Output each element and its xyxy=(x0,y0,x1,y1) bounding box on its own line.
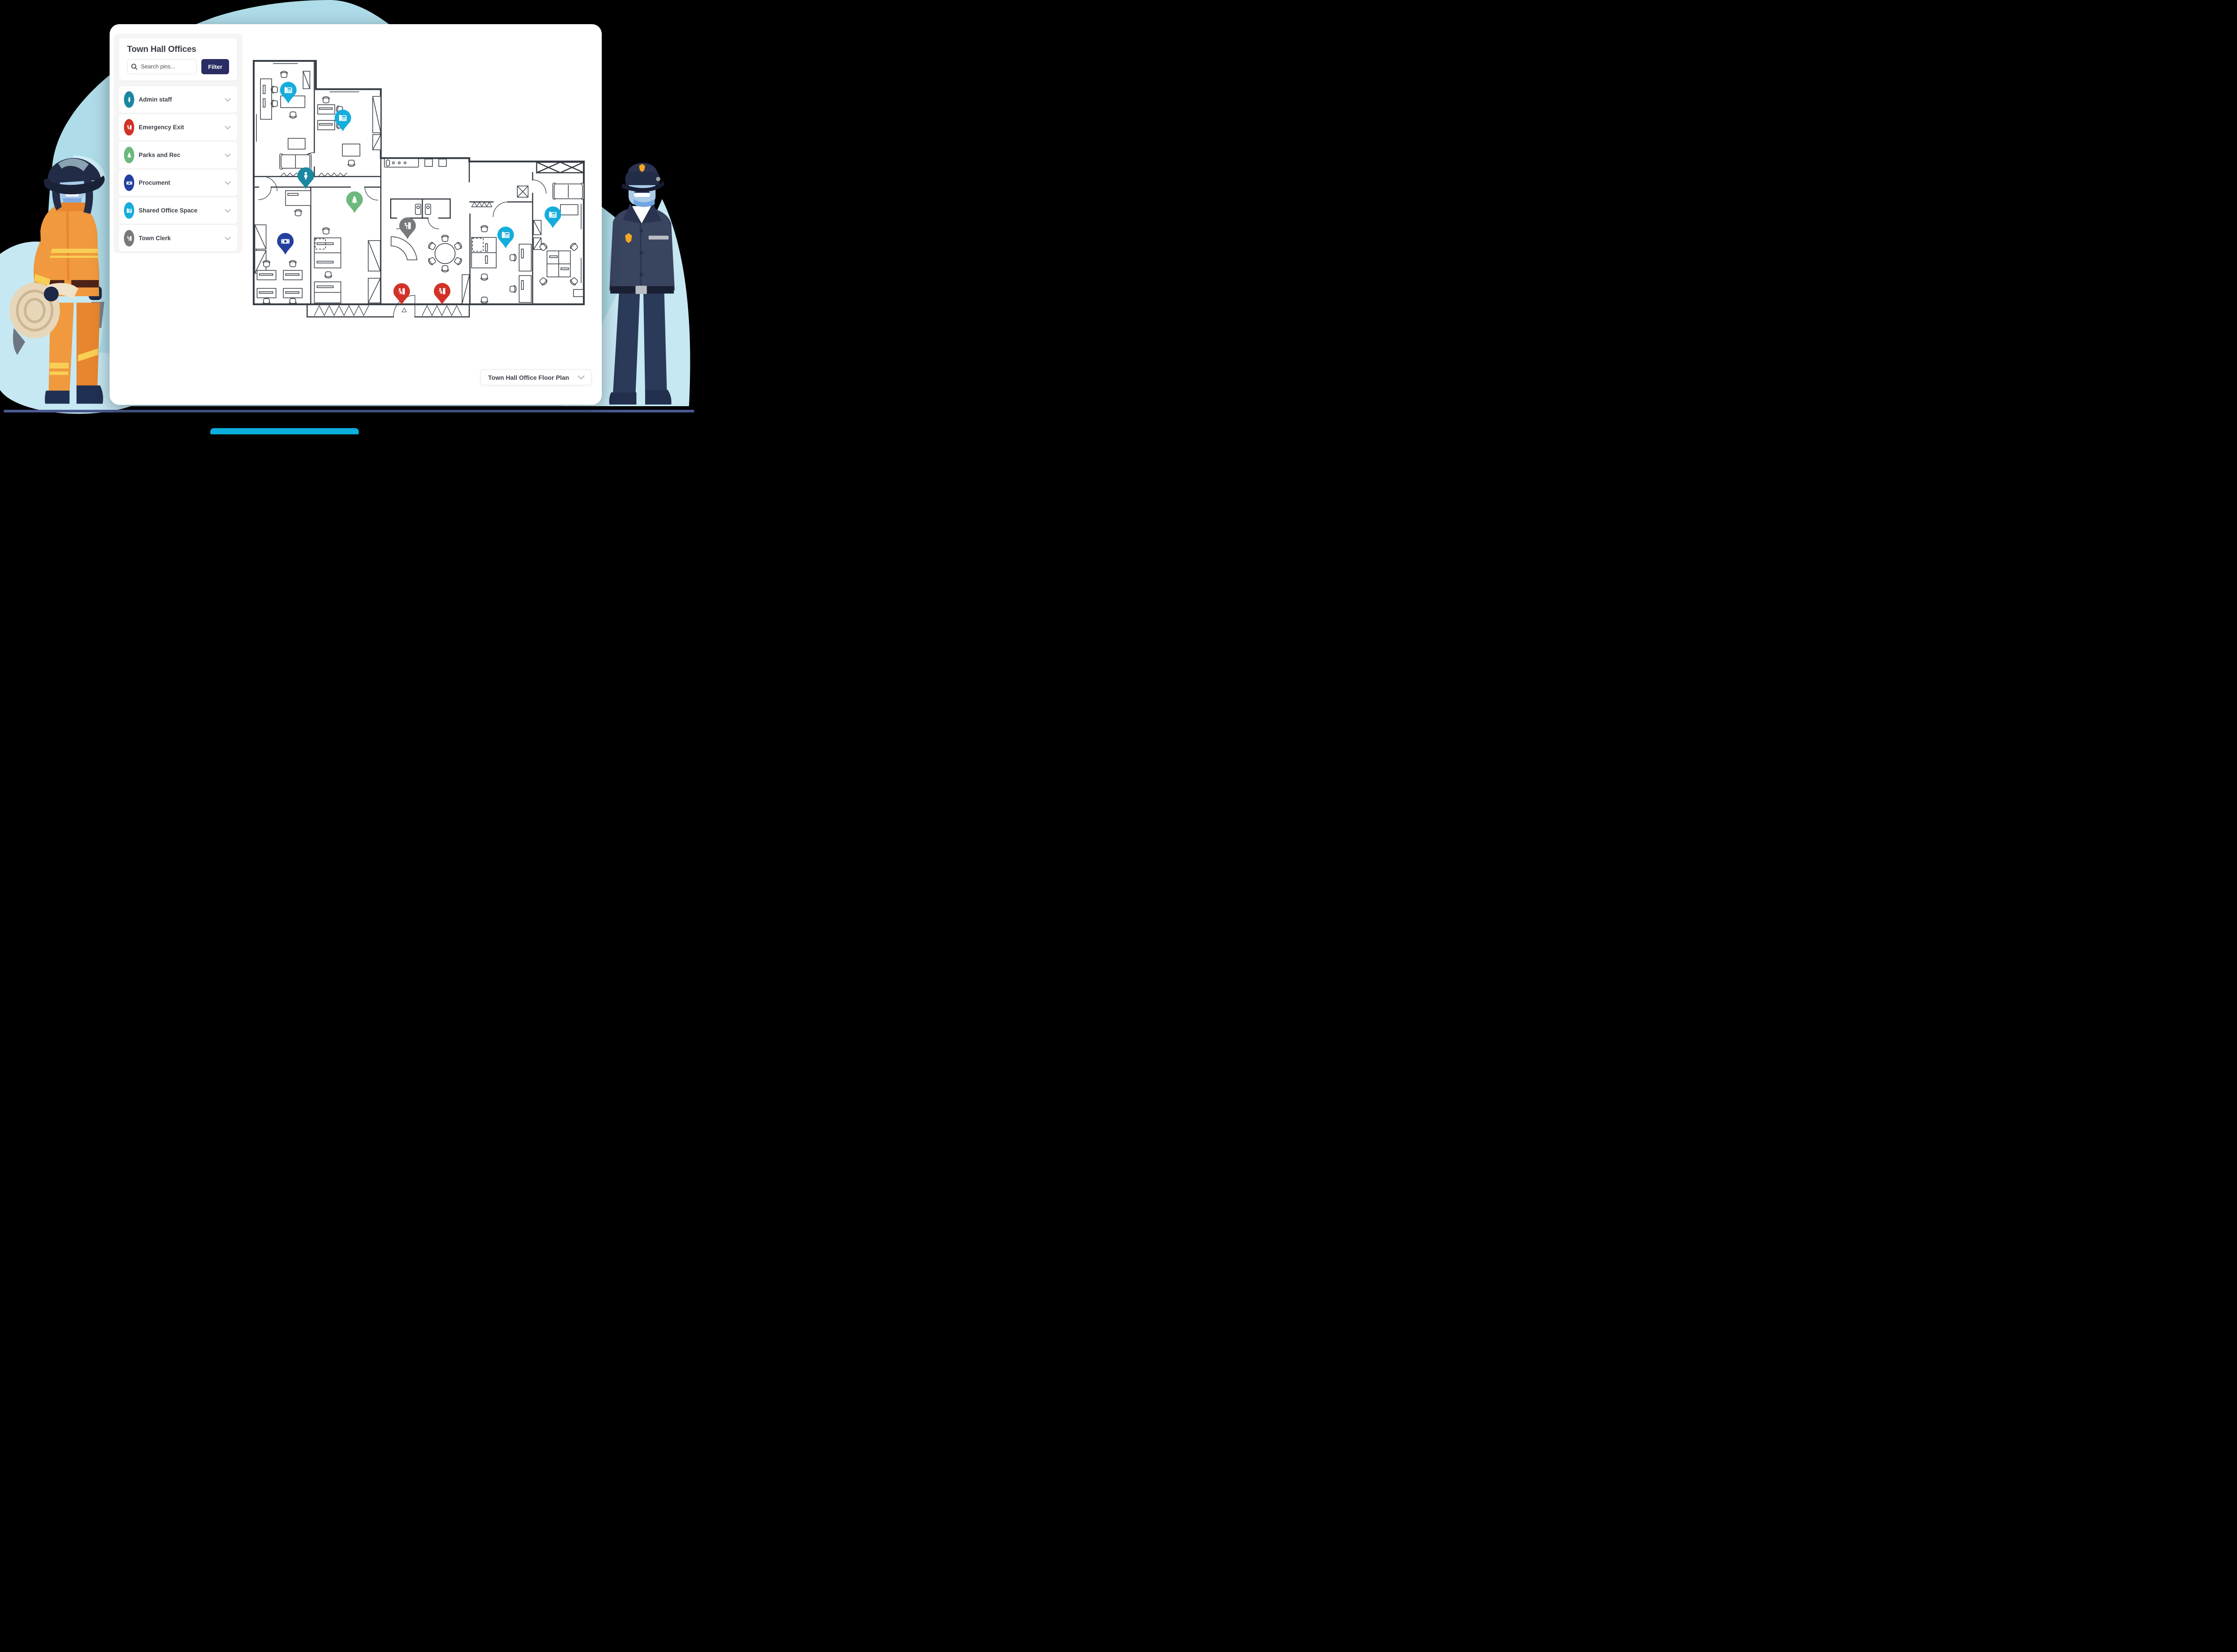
category-row-procument[interactable]: Procument xyxy=(119,170,237,196)
page: Town Hall Offices Filter Admin staff xyxy=(0,0,702,434)
conference-table xyxy=(427,235,463,272)
pin-shared-office-space-3[interactable] xyxy=(498,227,514,249)
floorplan-selector-value: Town Hall Office Floor Plan xyxy=(488,374,578,381)
pin-shared-office-space-4[interactable] xyxy=(544,206,561,228)
pin-emergency-exit-2[interactable] xyxy=(434,283,451,305)
category-label: Procument xyxy=(139,179,225,186)
office-top-second xyxy=(318,97,360,166)
chevron-down-icon xyxy=(225,153,231,157)
person-icon xyxy=(124,91,134,108)
category-row-admin-staff[interactable]: Admin staff xyxy=(119,86,237,113)
floor-plan-furniture xyxy=(255,71,584,305)
pin-emergency-exit-1[interactable] xyxy=(393,283,410,305)
police-officer xyxy=(609,163,675,404)
firefighter xyxy=(9,156,106,404)
floor-plan xyxy=(247,47,595,329)
category-row-shared-office-space[interactable]: Shared Office Space xyxy=(119,197,237,224)
chevron-down-icon xyxy=(225,237,231,240)
category-row-emergency-exit[interactable]: Emergency Exit xyxy=(119,114,237,140)
sidebar: Town Hall Offices Filter Admin staff xyxy=(114,34,242,253)
chevron-down-icon xyxy=(225,181,231,185)
pin-procument[interactable] xyxy=(277,233,293,255)
chevron-down-icon xyxy=(225,126,231,129)
search-icon xyxy=(131,64,137,70)
category-label: Parks and Rec xyxy=(139,152,225,158)
filter-button[interactable]: Filter xyxy=(201,59,229,74)
search-input[interactable] xyxy=(127,59,197,74)
police-officer-illustration xyxy=(592,150,695,412)
category-label: Emergency Exit xyxy=(139,124,225,131)
category-row-parks-and-rec[interactable]: Parks and Rec xyxy=(119,142,237,168)
clerk-door-icon xyxy=(124,230,134,246)
pin-town-clerk[interactable] xyxy=(399,217,416,239)
office-far-right xyxy=(539,183,584,297)
app-card: Town Hall Offices Filter Admin staff xyxy=(110,24,602,405)
money-icon xyxy=(124,174,134,191)
category-row-town-clerk[interactable]: Town Clerk xyxy=(119,225,237,251)
pin-parks-and-rec[interactable] xyxy=(346,191,363,213)
page-title: Town Hall Offices xyxy=(127,45,229,55)
accent-bar xyxy=(210,428,359,434)
floorplan-selector[interactable]: Town Hall Office Floor Plan xyxy=(480,369,592,386)
pin-admin-staff[interactable] xyxy=(298,167,314,189)
chevron-down-icon xyxy=(225,98,231,102)
search-box xyxy=(127,59,197,74)
category-label: Shared Office Space xyxy=(139,207,225,214)
category-label: Admin staff xyxy=(139,96,225,103)
fax-phone-icon xyxy=(124,202,134,219)
firefighter-illustration xyxy=(7,150,113,412)
tree-icon xyxy=(124,147,134,163)
chevron-down-icon xyxy=(225,209,231,212)
workstations-center-left xyxy=(315,228,341,303)
utility-rooms xyxy=(384,158,447,259)
sidebar-header: Town Hall Offices Filter xyxy=(119,38,237,81)
category-list: Admin staff Emergency Exit Parks and Rec… xyxy=(119,86,237,251)
category-label: Town Clerk xyxy=(139,235,225,242)
chevron-down-icon xyxy=(578,375,585,379)
window-hatches xyxy=(281,173,492,316)
exit-run-icon xyxy=(124,119,134,136)
